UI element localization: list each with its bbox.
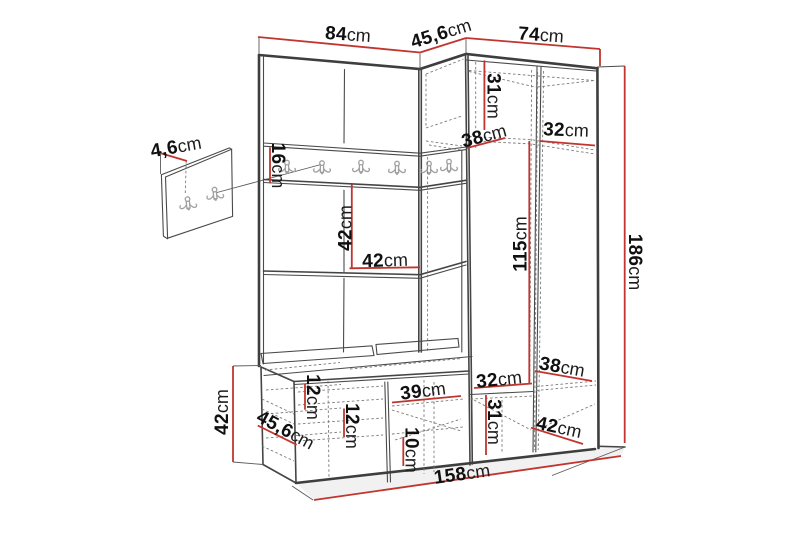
svg-text:186cm: 186cm — [625, 234, 646, 291]
svg-text:12cm: 12cm — [303, 374, 324, 420]
svg-text:115cm: 115cm — [510, 216, 531, 272]
svg-text:42cm: 42cm — [362, 249, 408, 272]
svg-text:12cm: 12cm — [342, 403, 363, 449]
svg-text:31cm: 31cm — [483, 73, 504, 119]
svg-text:32cm: 32cm — [543, 119, 589, 142]
svg-text:84cm: 84cm — [324, 22, 371, 46]
svg-text:16cm: 16cm — [268, 143, 289, 189]
svg-text:31cm: 31cm — [484, 399, 505, 445]
svg-text:42cm: 42cm — [335, 205, 356, 251]
svg-text:74cm: 74cm — [517, 23, 564, 47]
svg-text:10cm: 10cm — [401, 427, 422, 473]
svg-text:42cm: 42cm — [212, 389, 233, 435]
